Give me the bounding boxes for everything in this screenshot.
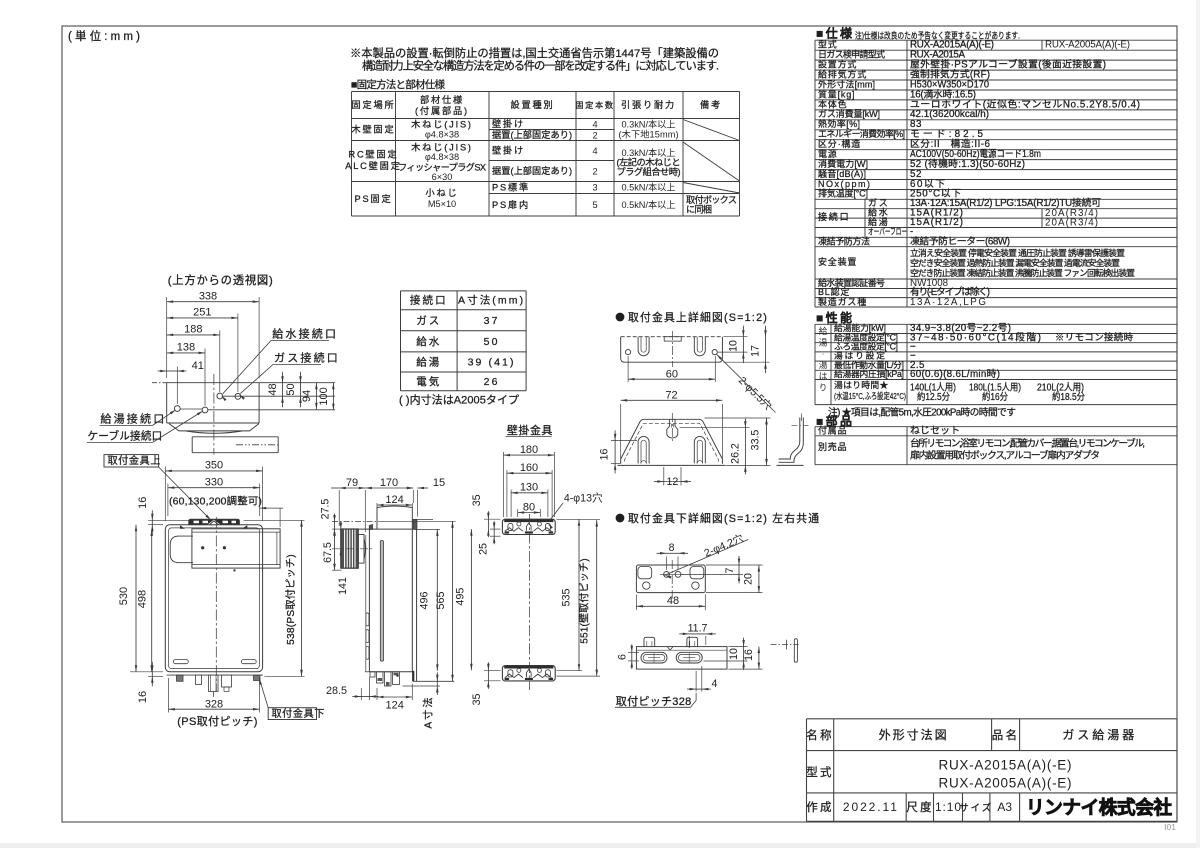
svg-text:67.5: 67.5 xyxy=(322,542,334,563)
svg-text:( )内寸法はA2005タイプ: ( )内寸法はA2005タイプ xyxy=(399,393,519,407)
svg-text:60(0.6)(8.6L/min時): 60(0.6)(8.6L/min時) xyxy=(910,368,1000,380)
svg-text:16: 16 xyxy=(137,497,149,509)
svg-text:(単位:mm): (単位:mm) xyxy=(68,29,140,43)
svg-text:給: 給 xyxy=(819,325,828,336)
svg-text:部材仕様: 部材仕様 xyxy=(420,94,464,105)
svg-text:別売品: 別売品 xyxy=(818,441,847,452)
svg-text:ALC壁固定: ALC壁固定 xyxy=(345,160,401,171)
svg-text:付属品: 付属品 xyxy=(818,426,847,436)
svg-text:給湯: 給湯 xyxy=(868,216,890,227)
svg-text:質量[kg]: 質量[kg] xyxy=(818,88,855,99)
svg-text:10: 10 xyxy=(728,648,740,660)
svg-text:15: 15 xyxy=(433,477,445,489)
svg-text:外形寸法[mm]: 外形寸法[mm] xyxy=(818,78,875,89)
svg-text:リンナイ株式会社: リンナイ株式会社 xyxy=(1026,797,1172,818)
svg-text:ガス消費量[kW]: ガス消費量[kW] xyxy=(818,108,880,119)
svg-text:48: 48 xyxy=(267,383,279,395)
svg-text:立消え安全装置 停電安全装置 通圧防止装置 誘導雷保護装置: 立消え安全装置 停電安全装置 通圧防止装置 誘導雷保護装置 xyxy=(910,247,1125,258)
svg-text:給水接続口: 給水接続口 xyxy=(272,327,338,341)
svg-text:20: 20 xyxy=(743,573,755,585)
svg-text:取付金具上詳細図(S=1:2): 取付金具上詳細図(S=1:2) xyxy=(628,310,768,324)
svg-text:接続口: 接続口 xyxy=(818,211,850,222)
svg-text:20A(R3/4): 20A(R3/4) xyxy=(1045,217,1098,228)
svg-text:130: 130 xyxy=(520,482,538,494)
svg-text:空だき安全装置 過熱防止装置 漏電安全装置 過電流安全装置: 空だき安全装置 過熱防止装置 漏電安全装置 過電流安全装置 xyxy=(910,257,1120,268)
svg-text:製造ガス種: 製造ガス種 xyxy=(818,296,867,307)
svg-text:給湯接続口: 給湯接続口 xyxy=(100,412,166,426)
svg-text:5: 5 xyxy=(592,200,597,210)
svg-text:構造耐力上安全な構造方法を定める件の一部を改定する件」に対応: 構造耐力上安全な構造方法を定める件の一部を改定する件」に対応しています. xyxy=(362,59,719,73)
svg-text:給湯器内圧損[kPa]: 給湯器内圧損[kPa] xyxy=(834,368,904,379)
svg-text:凍結予防方法: 凍結予防方法 xyxy=(818,235,870,246)
svg-text:3: 3 xyxy=(592,183,597,193)
svg-text:電源: 電源 xyxy=(818,149,838,159)
svg-text:給水: 給水 xyxy=(868,207,890,218)
svg-text:フィッシャープラグSX: フィッシャープラグSX xyxy=(398,162,486,173)
svg-text:251: 251 xyxy=(193,307,211,319)
svg-text:ガス給湯器: ガス給湯器 xyxy=(1062,728,1134,742)
svg-text:木ねじ(JIS): 木ねじ(JIS) xyxy=(411,119,473,130)
svg-text:湯: 湯 xyxy=(819,360,828,370)
svg-text:φ4.8×38: φ4.8×38 xyxy=(425,130,459,140)
svg-text:80: 80 xyxy=(523,501,535,513)
svg-text:50: 50 xyxy=(285,383,297,395)
svg-text:取付ボックス: 取付ボックス xyxy=(686,195,737,205)
svg-text:6×30: 6×30 xyxy=(432,172,453,182)
svg-text:RUX-A2015A(A)(-E): RUX-A2015A(A)(-E) xyxy=(939,758,1072,773)
svg-text:50: 50 xyxy=(484,336,500,348)
svg-text:138: 138 xyxy=(177,342,195,354)
svg-text:給水: 給水 xyxy=(416,335,441,348)
svg-text:給湯: 給湯 xyxy=(416,356,441,369)
svg-text:160: 160 xyxy=(520,462,538,474)
svg-text:2: 2 xyxy=(592,167,597,177)
svg-text:PS標準: PS標準 xyxy=(492,182,530,193)
svg-text:15A(R1/2): 15A(R1/2) xyxy=(910,217,963,228)
svg-text:型式: 型式 xyxy=(818,39,838,50)
svg-text:作成: 作成 xyxy=(806,801,834,814)
svg-text:498: 498 xyxy=(137,590,149,608)
svg-text:騒音[dB(A)]: 騒音[dB(A)] xyxy=(818,168,866,179)
svg-text:φ4.8×38: φ4.8×38 xyxy=(425,152,459,162)
svg-text:48: 48 xyxy=(667,595,679,607)
svg-text:設置方式: 設置方式 xyxy=(818,59,857,70)
svg-text:PS扉内: PS扉内 xyxy=(492,199,530,210)
svg-text:(付属部品): (付属部品) xyxy=(415,105,469,116)
svg-text:60: 60 xyxy=(666,368,678,380)
svg-text:8: 8 xyxy=(669,542,675,554)
svg-text:25: 25 xyxy=(478,543,490,555)
svg-text:引張り耐力: 引張り耐力 xyxy=(621,99,676,110)
svg-text:41: 41 xyxy=(192,360,204,372)
svg-text:180: 180 xyxy=(520,444,538,456)
svg-text:プラグ組合せ時): プラグ組合せ時) xyxy=(617,166,681,177)
svg-text:名称: 名称 xyxy=(806,728,834,742)
svg-text:124: 124 xyxy=(386,699,404,711)
svg-text:27.5: 27.5 xyxy=(319,499,331,520)
svg-text:·: · xyxy=(822,349,825,359)
svg-text:区分·構造: 区分·構造 xyxy=(818,138,861,149)
svg-text:約12.5分: 約12.5分 xyxy=(917,390,950,403)
svg-text:26.2: 26.2 xyxy=(729,443,741,464)
svg-text:538(PS取付ピッチ): 538(PS取付ピッチ) xyxy=(284,554,297,645)
svg-text:外形寸法図: 外形寸法図 xyxy=(879,728,947,742)
svg-text:サイズ: サイズ xyxy=(959,802,993,814)
svg-text:壁掛金具: 壁掛金具 xyxy=(507,423,553,437)
svg-text:型式: 型式 xyxy=(806,765,834,779)
svg-text:設置種別: 設置種別 xyxy=(510,99,554,110)
svg-text:木ねじ(JIS): 木ねじ(JIS) xyxy=(411,142,473,153)
svg-text:取付金具下: 取付金具下 xyxy=(272,707,325,720)
svg-text:0.3kN/本以上: 0.3kN/本以上 xyxy=(621,147,675,158)
svg-text:ガス接続口: ガス接続口 xyxy=(274,351,340,365)
svg-text:■固定方法と部材仕様: ■固定方法と部材仕様 xyxy=(351,78,446,91)
svg-text:4: 4 xyxy=(592,146,597,156)
svg-text:37: 37 xyxy=(484,315,500,327)
svg-text:安全装置: 安全装置 xyxy=(818,256,857,267)
svg-text:16: 16 xyxy=(743,649,755,661)
svg-text:本体色: 本体色 xyxy=(818,98,847,109)
svg-text:約16分: 約16分 xyxy=(982,390,1008,403)
svg-text:据置(上部固定あり): 据置(上部固定あり) xyxy=(492,165,572,176)
svg-text:A寸法: A寸法 xyxy=(422,695,435,728)
svg-text:※リモコン接続時: ※リモコン接続時 xyxy=(1055,331,1134,342)
svg-text:※本製品の設置·転倒防止の措置は,国土交通省告示第1447号: ※本製品の設置·転倒防止の措置は,国土交通省告示第1447号「建築設備の xyxy=(350,46,719,60)
svg-text:台所リモコン,浴室リモコン,配管カバー,据置台,リモコンケー: 台所リモコン,浴室リモコン,配管カバー,据置台,リモコンケーブル, xyxy=(910,437,1145,450)
svg-text:取付ピッチ328: 取付ピッチ328 xyxy=(616,695,692,708)
svg-text:496: 496 xyxy=(419,591,431,609)
svg-text:日ガス検申請型式: 日ガス検申請型式 xyxy=(818,49,885,60)
svg-text:品名: 品名 xyxy=(992,728,1020,742)
svg-text:495: 495 xyxy=(454,588,466,606)
svg-text:消費電力[W]: 消費電力[W] xyxy=(818,158,868,169)
svg-text:尺度: 尺度 xyxy=(906,800,934,814)
svg-text:給排気方式: 給排気方式 xyxy=(818,68,867,79)
svg-text:ねじセット: ねじセット xyxy=(910,425,960,437)
svg-text:26: 26 xyxy=(484,376,500,388)
svg-text:A3: A3 xyxy=(997,800,1012,814)
svg-text:湯: 湯 xyxy=(819,337,828,347)
svg-text:4-φ13穴: 4-φ13穴 xyxy=(564,492,603,505)
svg-text:530: 530 xyxy=(118,587,130,605)
svg-text:39 (41): 39 (41) xyxy=(468,357,516,369)
svg-text:565: 565 xyxy=(435,591,447,609)
svg-text:16: 16 xyxy=(599,449,611,461)
svg-text:凍結予防ヒーター(68W): 凍結予防ヒーター(68W) xyxy=(910,234,1010,247)
svg-text:(上方からの透視図): (上方からの透視図) xyxy=(168,273,274,287)
svg-text:壁掛け: 壁掛け xyxy=(492,145,525,156)
svg-text:35: 35 xyxy=(471,694,483,706)
svg-text:535: 535 xyxy=(560,588,572,606)
svg-text:37~48·50·60°C(14段階): 37~48·50·60°C(14段階) xyxy=(910,330,1041,343)
svg-text:■仕様: ■仕様 xyxy=(816,26,854,41)
svg-text:NOx(ppm): NOx(ppm) xyxy=(818,179,870,189)
svg-text:(60,130,200調整可): (60,130,200調整可) xyxy=(169,495,262,508)
svg-text:17: 17 xyxy=(750,345,762,357)
svg-text:壁掛け: 壁掛け xyxy=(492,118,525,129)
svg-text:電気: 電気 xyxy=(416,375,441,388)
svg-text:0.5kN/本以上: 0.5kN/本以上 xyxy=(621,182,675,193)
svg-text:I01: I01 xyxy=(1164,822,1176,832)
svg-text:固定場所: 固定場所 xyxy=(351,99,395,110)
svg-text:7: 7 xyxy=(724,567,736,573)
svg-text:扉内設置用取付ボックス,アルコーブ扉内アダプタ: 扉内設置用取付ボックス,アルコーブ扉内アダプタ xyxy=(910,449,1100,462)
svg-text:328: 328 xyxy=(205,698,223,710)
svg-text:(木下地15mm): (木下地15mm) xyxy=(619,129,679,140)
svg-text:350: 350 xyxy=(205,460,223,472)
svg-text:2: 2 xyxy=(592,131,597,141)
svg-text:10: 10 xyxy=(727,340,739,352)
svg-text:28.5: 28.5 xyxy=(326,685,347,697)
svg-text:188: 188 xyxy=(184,324,202,336)
svg-text:(水温15°C,ふろ設定42°C): (水温15°C,ふろ設定42°C) xyxy=(834,391,906,401)
svg-text:取付金具下詳細図(S=1:2) 左右共通: 取付金具下詳細図(S=1:2) 左右共通 xyxy=(628,511,820,525)
svg-text:備考: 備考 xyxy=(700,99,722,110)
svg-text:り: り xyxy=(819,383,828,393)
svg-text:170: 170 xyxy=(380,477,398,489)
svg-text:注) ★項目は,配管5m,水圧200kPa時の時間です: 注) ★項目は,配管5m,水圧200kPa時の時間です xyxy=(828,406,1016,419)
svg-text:RUX-A2005A(A)(-E): RUX-A2005A(A)(-E) xyxy=(1045,40,1130,51)
svg-text:ガス: ガス xyxy=(416,315,441,327)
svg-text:16: 16 xyxy=(137,691,149,703)
svg-text:100: 100 xyxy=(318,387,330,405)
svg-text:RUX-A2005A(A)(-E): RUX-A2005A(A)(-E) xyxy=(939,776,1072,791)
svg-text:(PS取付ピッチ): (PS取付ピッチ) xyxy=(177,715,258,728)
svg-text:13A·12A,LPG: 13A·12A,LPG xyxy=(910,297,986,308)
svg-text:PS固定: PS固定 xyxy=(355,193,393,204)
svg-text:接続口: 接続口 xyxy=(410,294,448,307)
svg-text:A寸法(mm): A寸法(mm) xyxy=(458,294,525,307)
svg-text:338: 338 xyxy=(199,291,217,303)
svg-text:に同梱: に同梱 xyxy=(686,204,712,215)
svg-text:(左記の木ねじと: (左記の木ねじと xyxy=(617,157,681,168)
svg-text:は: は xyxy=(819,371,828,381)
svg-text:熱効率[%]: 熱効率[%] xyxy=(818,118,860,129)
svg-text:RC壁固定: RC壁固定 xyxy=(348,149,398,160)
svg-text:4: 4 xyxy=(592,120,597,130)
svg-text:79: 79 xyxy=(346,477,358,489)
svg-text:0.3kN/本以上: 0.3kN/本以上 xyxy=(621,119,675,130)
svg-text:空だき防止装置 凍結防止装置 沸騰防止装置 ファン回転検出装: 空だき防止装置 凍結防止装置 沸騰防止装置 ファン回転検出装置 xyxy=(910,267,1135,278)
svg-text:1:10: 1:10 xyxy=(935,800,961,814)
svg-text:35: 35 xyxy=(471,494,483,506)
svg-text:M5×10: M5×10 xyxy=(428,199,456,209)
svg-text:551(壁取付ピッチ): 551(壁取付ピッチ) xyxy=(578,558,591,644)
svg-text:6: 6 xyxy=(617,654,629,660)
svg-text:取付金具上: 取付金具上 xyxy=(108,454,161,467)
svg-text:エネルギー消費効率[%]: エネルギー消費効率[%] xyxy=(818,128,905,139)
svg-text:木壁固定: 木壁固定 xyxy=(351,124,395,135)
svg-text:0.5kN/本以上: 0.5kN/本以上 xyxy=(621,199,675,210)
svg-text:オーバーフロー: オーバーフロー xyxy=(868,227,907,237)
svg-text:124: 124 xyxy=(385,494,403,506)
svg-text:11.7: 11.7 xyxy=(688,623,708,635)
svg-text:141: 141 xyxy=(337,577,349,595)
svg-text:排気温度[°C]: 排気温度[°C] xyxy=(818,188,868,199)
svg-text:湯はり時間★: 湯はり時間★ xyxy=(834,380,889,390)
svg-text:52 (待機時:1.3)(50-60Hz): 52 (待機時:1.3)(50-60Hz) xyxy=(910,157,1025,170)
svg-text:330: 330 xyxy=(205,477,223,489)
svg-text:BL認定: BL認定 xyxy=(818,286,850,297)
svg-text:固定本数: 固定本数 xyxy=(575,100,614,110)
svg-text:33.5: 33.5 xyxy=(750,430,762,451)
svg-text:据置(上部固定あり): 据置(上部固定あり) xyxy=(492,129,572,140)
svg-text:ケーブル接続口: ケーブル接続口 xyxy=(88,430,163,443)
svg-text:12: 12 xyxy=(667,476,679,488)
svg-text:小ねじ: 小ねじ xyxy=(425,188,458,198)
svg-text:約18.5分: 約18.5分 xyxy=(1052,390,1085,403)
svg-text:94: 94 xyxy=(301,390,313,402)
svg-text:72: 72 xyxy=(665,389,677,401)
svg-text:4: 4 xyxy=(712,678,718,690)
